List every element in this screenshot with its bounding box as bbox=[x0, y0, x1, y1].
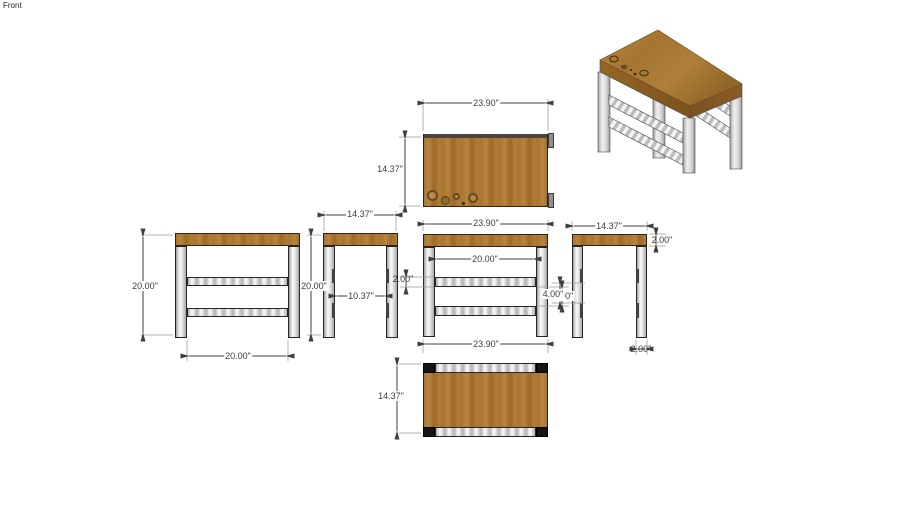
dim-center-width[interactable]: 23.90" bbox=[472, 218, 500, 228]
dim-front-height[interactable]: 20.00" bbox=[131, 281, 159, 291]
dim-side-right-rail-gap[interactable]: 4.00" bbox=[542, 289, 565, 299]
dimension-lines bbox=[0, 0, 910, 512]
dim-side-left-height[interactable]: 20.00" bbox=[300, 281, 328, 291]
dim-front-leg-span[interactable]: 20.00" bbox=[224, 351, 252, 361]
dimension-arrows bbox=[143, 103, 656, 431]
extension-lines bbox=[141, 99, 666, 433]
dim-bottom-depth[interactable]: 14.37" bbox=[377, 391, 405, 401]
dim-side-left-leg-gap[interactable]: 10.37" bbox=[347, 291, 375, 301]
dim-center-leg-span[interactable]: 20.00" bbox=[471, 254, 499, 264]
dim-center-bottom-width[interactable]: 23.90" bbox=[472, 339, 500, 349]
dim-leg-width[interactable]: 2.00" bbox=[630, 344, 653, 354]
dim-rail-thickness[interactable]: 2.00" bbox=[392, 274, 415, 284]
dim-side-left-width[interactable]: 14.37" bbox=[346, 209, 374, 219]
dim-top-thickness[interactable]: 2.00" bbox=[651, 235, 674, 245]
viewport: Front bbox=[0, 0, 910, 512]
dim-top-width[interactable]: 23.90" bbox=[472, 98, 500, 108]
dim-top-depth[interactable]: 14.37" bbox=[376, 164, 404, 174]
dim-side-right-width[interactable]: 14.37" bbox=[595, 221, 623, 231]
